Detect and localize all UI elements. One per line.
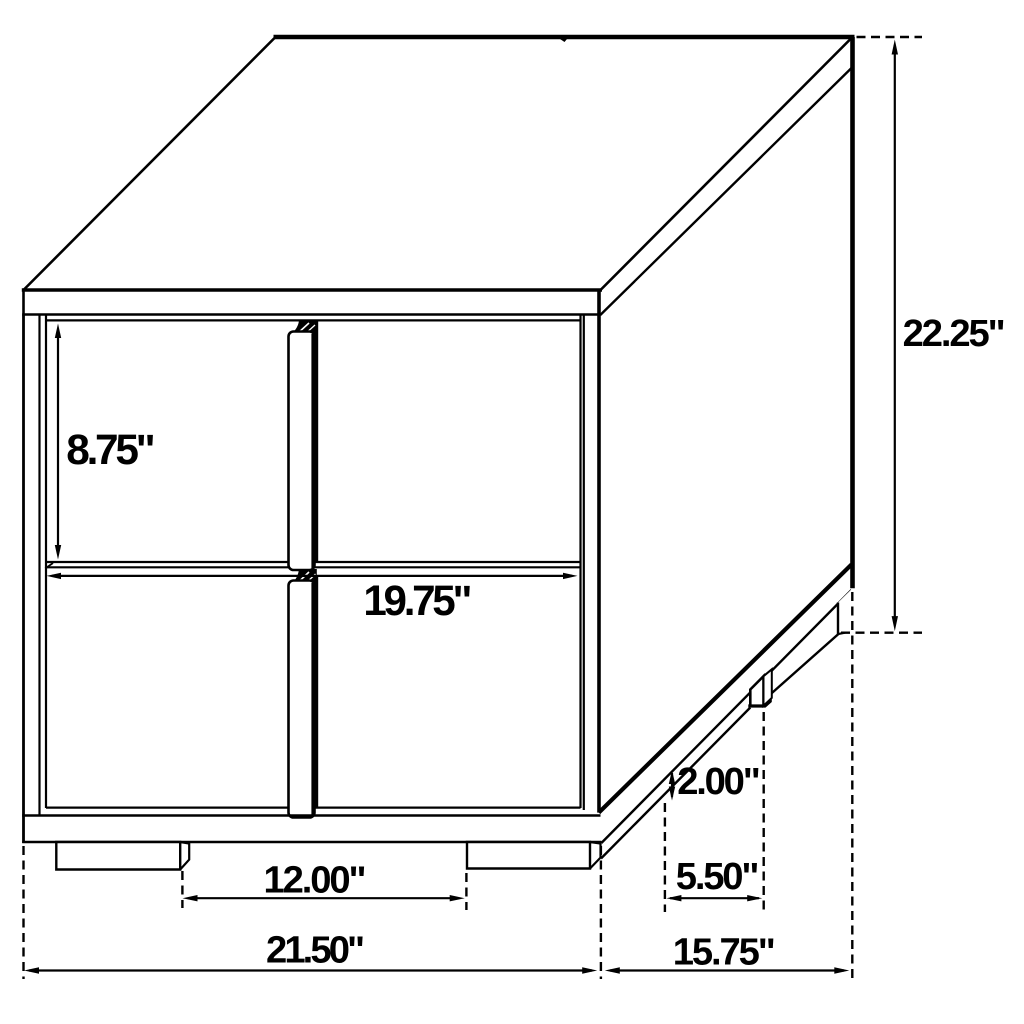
svg-text:19.75": 19.75"	[363, 577, 470, 624]
svg-text:2.00": 2.00"	[677, 760, 759, 803]
svg-text:12.00": 12.00"	[264, 859, 365, 902]
svg-text:15.75": 15.75"	[673, 931, 774, 974]
svg-text:22.25": 22.25"	[903, 312, 1004, 355]
svg-text:5.50": 5.50"	[676, 855, 758, 898]
svg-text:21.50": 21.50"	[266, 929, 363, 972]
svg-text:8.75": 8.75"	[66, 426, 153, 473]
